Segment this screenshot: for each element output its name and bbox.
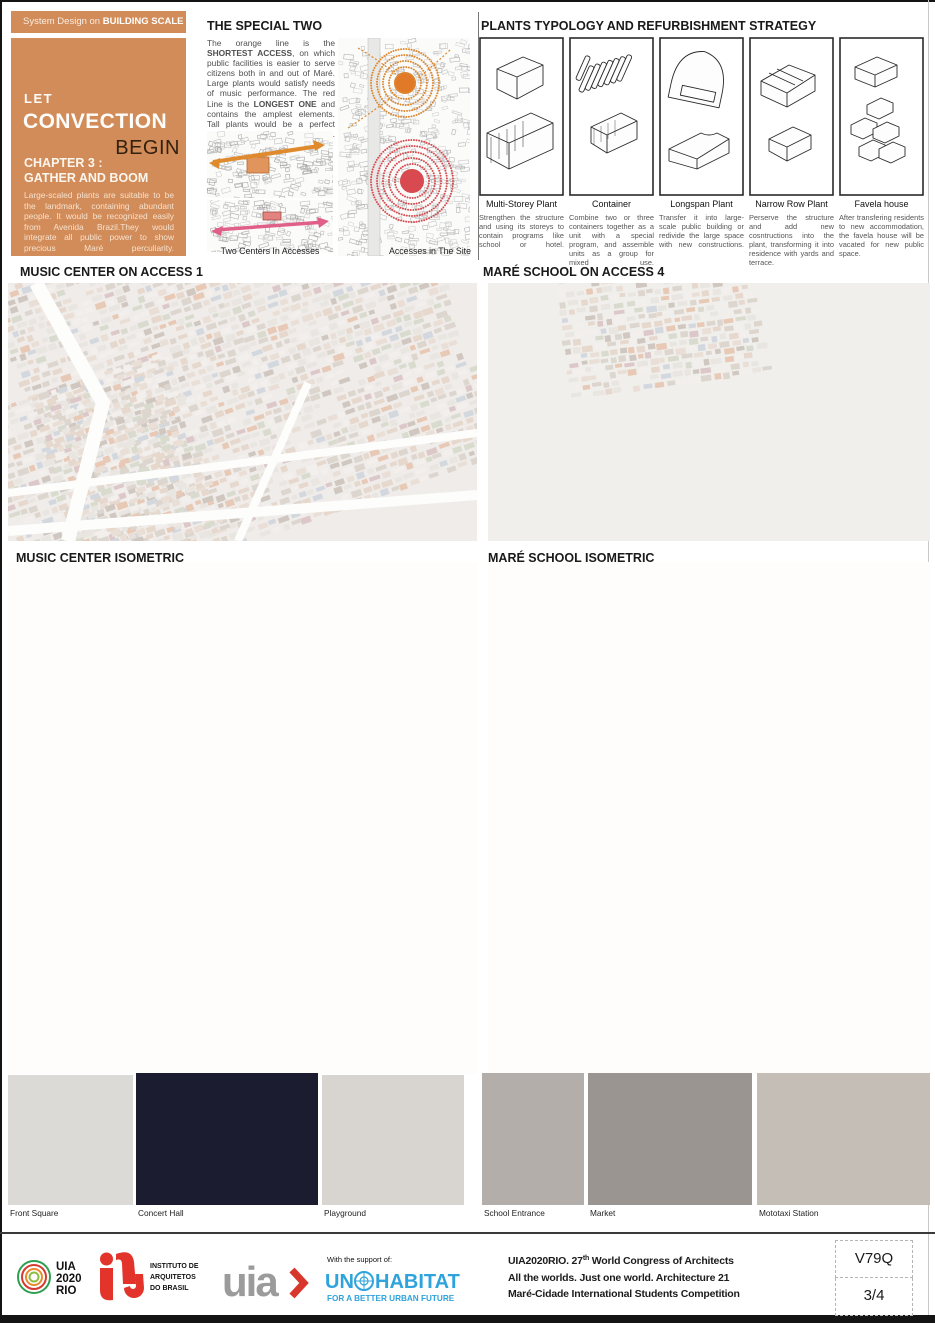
svg-text:uia: uia: [222, 1258, 279, 1304]
svg-text:HABITAT: HABITAT: [375, 1271, 460, 1293]
svg-text:INSTITUTO DE: INSTITUTO DE: [150, 1263, 199, 1270]
svg-text:RIO: RIO: [56, 1285, 77, 1297]
svg-text:UIA: UIA: [56, 1261, 76, 1273]
svg-text:FOR A BETTER URBAN FUTURE: FOR A BETTER URBAN FUTURE: [327, 1294, 455, 1303]
svg-text:DO BRASIL: DO BRASIL: [150, 1285, 189, 1292]
svg-text:ARQUITETOS: ARQUITETOS: [150, 1274, 196, 1281]
svg-text:With the support of:: With the support of:: [327, 1255, 392, 1264]
svg-text:UN: UN: [325, 1271, 354, 1293]
svg-text:2020: 2020: [56, 1273, 82, 1285]
